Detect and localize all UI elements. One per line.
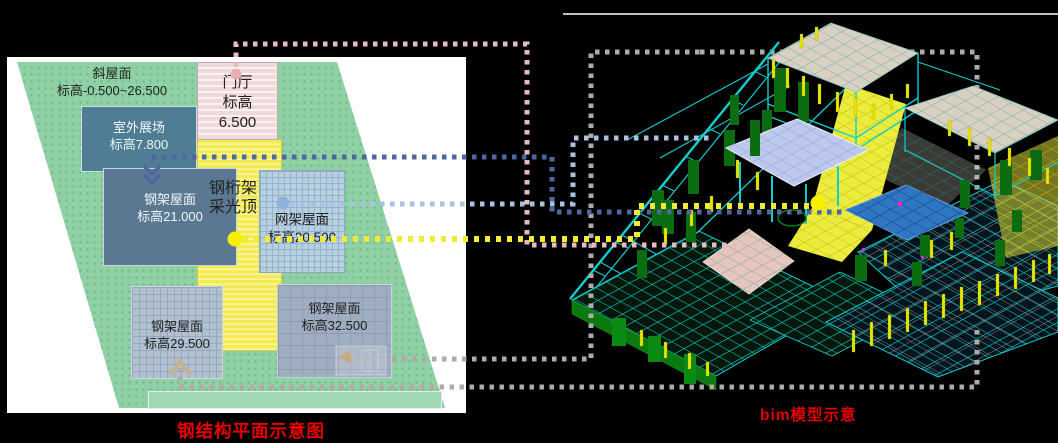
plan-caption: 钢结构平面示意图 — [177, 418, 325, 443]
connector-layer-top — [0, 0, 1058, 441]
entrance-anchor-dot — [231, 69, 242, 80]
space-frame-anchor-dot — [277, 197, 290, 210]
screenshot-root: { "captions": { "plan_caption": "钢结构平面示意… — [0, 0, 1058, 441]
model-caption: bim模型示意 — [760, 403, 857, 425]
walkway-anchor-dot — [811, 196, 826, 211]
gray-connector — [180, 52, 977, 387]
pink-connector — [231, 44, 751, 245]
light-blue-connector — [277, 138, 715, 210]
skylight-anchor-dot — [228, 232, 243, 247]
mini-floorplan-icon — [336, 346, 386, 375]
down-chevron-icon — [144, 166, 160, 174]
